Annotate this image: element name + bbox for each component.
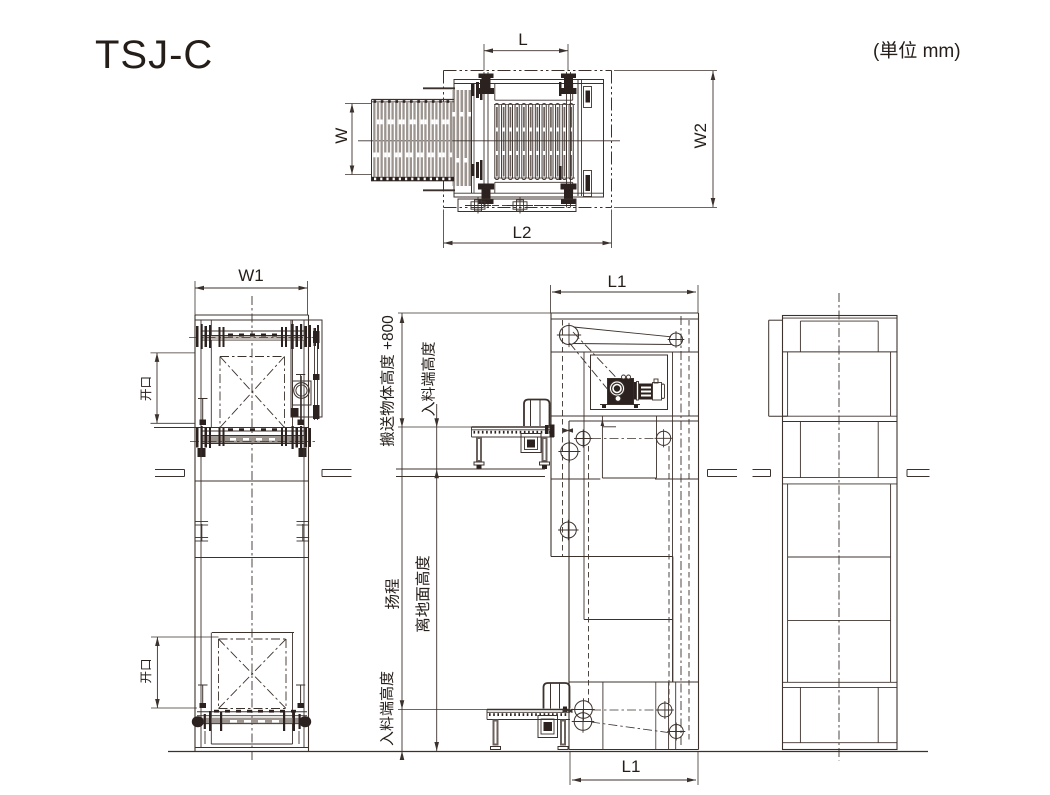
- svg-text:L2: L2: [513, 223, 532, 242]
- svg-text:W2: W2: [691, 123, 710, 149]
- svg-text:W: W: [332, 128, 351, 144]
- svg-text:(: (: [873, 41, 880, 62]
- svg-text:W1: W1: [238, 266, 264, 285]
- svg-text:+800: +800: [380, 315, 397, 354]
- svg-text:L1: L1: [608, 272, 627, 291]
- svg-text:mm): mm): [917, 41, 960, 62]
- svg-text:TSJ-C: TSJ-C: [95, 33, 213, 77]
- svg-text:L1: L1: [622, 757, 641, 776]
- svg-text:L: L: [518, 30, 527, 49]
